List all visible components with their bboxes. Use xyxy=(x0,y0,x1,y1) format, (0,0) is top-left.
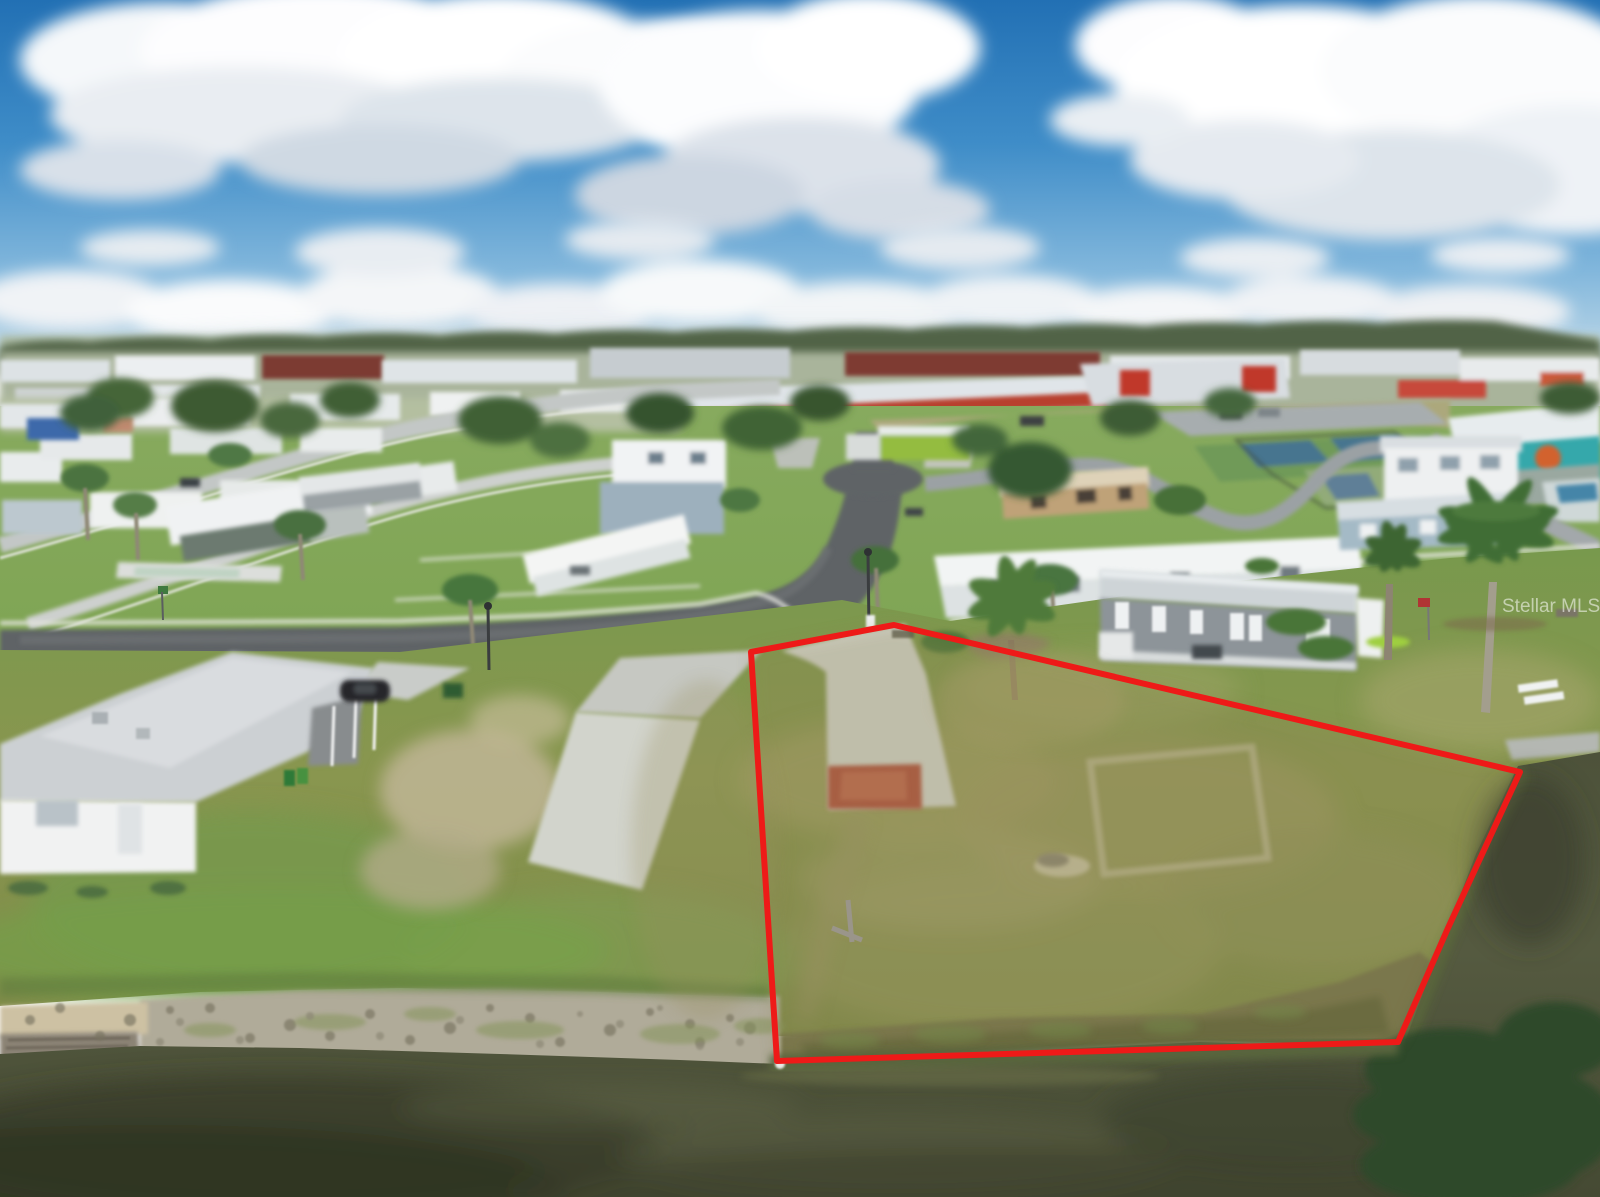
svg-text:Stellar MLS: Stellar MLS xyxy=(1502,596,1600,617)
